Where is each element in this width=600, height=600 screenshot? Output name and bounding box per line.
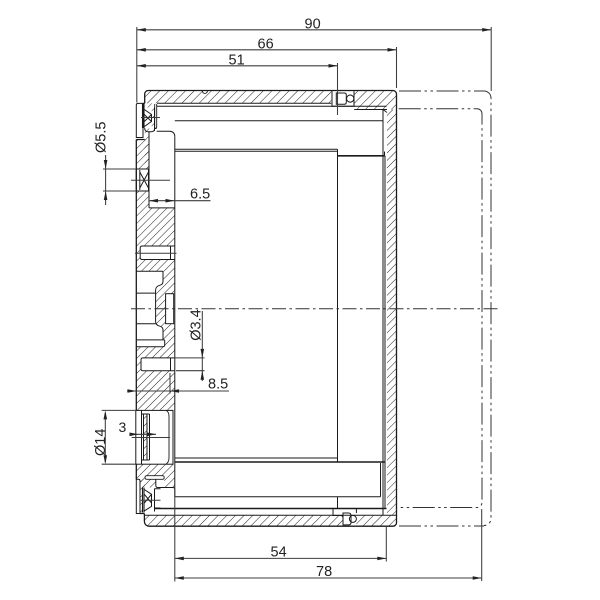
svg-text:Ø5.5: Ø5.5 — [94, 122, 110, 153]
svg-text:54: 54 — [271, 544, 287, 560]
svg-text:66: 66 — [258, 37, 274, 53]
svg-text:3: 3 — [119, 419, 127, 435]
svg-text:78: 78 — [316, 564, 332, 580]
svg-text:8.5: 8.5 — [208, 377, 228, 393]
svg-text:90: 90 — [305, 17, 321, 33]
svg-text:Ø14: Ø14 — [93, 429, 109, 456]
svg-text:51: 51 — [229, 53, 245, 69]
svg-text:6.5: 6.5 — [190, 187, 210, 203]
svg-text:Ø3.4: Ø3.4 — [189, 309, 205, 340]
